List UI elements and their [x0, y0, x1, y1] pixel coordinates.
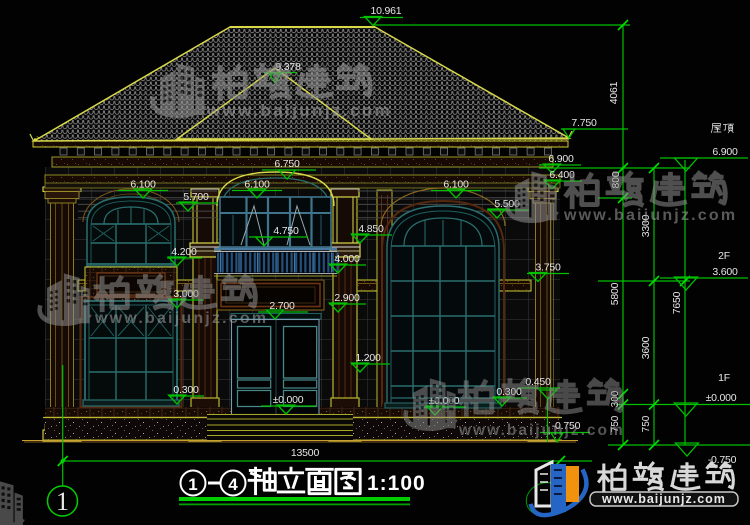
svg-text:3600: 3600 — [640, 336, 652, 359]
svg-text:6.100: 6.100 — [443, 179, 469, 191]
svg-text:4.750: 4.750 — [273, 225, 299, 237]
svg-text:10.961: 10.961 — [371, 5, 402, 17]
svg-text:4.000: 4.000 — [334, 253, 360, 265]
svg-text:±0.000: ±0.000 — [706, 392, 737, 404]
svg-text:4.200: 4.200 — [171, 246, 197, 258]
svg-text:4061: 4061 — [608, 81, 620, 104]
svg-text:6.750: 6.750 — [274, 158, 300, 170]
svg-text:7650: 7650 — [671, 291, 683, 314]
svg-text:www.baijunjz.com: www.baijunjz.com — [458, 422, 625, 439]
svg-text:www.baijunjz.com: www.baijunjz.com — [94, 310, 268, 327]
svg-text:2.900: 2.900 — [334, 292, 360, 304]
svg-text:1.200: 1.200 — [355, 352, 381, 364]
svg-text:3.600: 3.600 — [712, 266, 738, 278]
svg-text:5800: 5800 — [609, 282, 621, 305]
svg-text:www.baijunjz.com: www.baijunjz.com — [206, 101, 392, 120]
svg-text:1: 1 — [188, 475, 197, 494]
svg-text:www.baijunjz.com: www.baijunjz.com — [601, 492, 726, 506]
svg-text:1: 1 — [56, 487, 69, 516]
svg-text:3.750: 3.750 — [535, 262, 561, 274]
svg-text:2F: 2F — [718, 250, 730, 262]
svg-text:6.100: 6.100 — [130, 179, 156, 191]
svg-text:4.850: 4.850 — [358, 223, 384, 235]
svg-text:6.100: 6.100 — [244, 179, 270, 191]
svg-text:±0.000: ±0.000 — [273, 394, 304, 406]
svg-text:750: 750 — [641, 415, 652, 432]
svg-text:1:100: 1:100 — [367, 472, 426, 495]
svg-text:13500: 13500 — [291, 447, 320, 459]
svg-text:6.900: 6.900 — [712, 146, 738, 158]
svg-text:5.700: 5.700 — [183, 191, 209, 203]
svg-text:0.300: 0.300 — [173, 384, 199, 396]
svg-text:1F: 1F — [718, 372, 730, 384]
svg-text:4: 4 — [228, 475, 238, 494]
svg-text:www.baijunjz.com: www.baijunjz.com — [563, 207, 737, 224]
svg-text:7.750: 7.750 — [571, 117, 597, 129]
svg-text:6.900: 6.900 — [548, 153, 574, 165]
svg-text:2.700: 2.700 — [269, 300, 295, 312]
